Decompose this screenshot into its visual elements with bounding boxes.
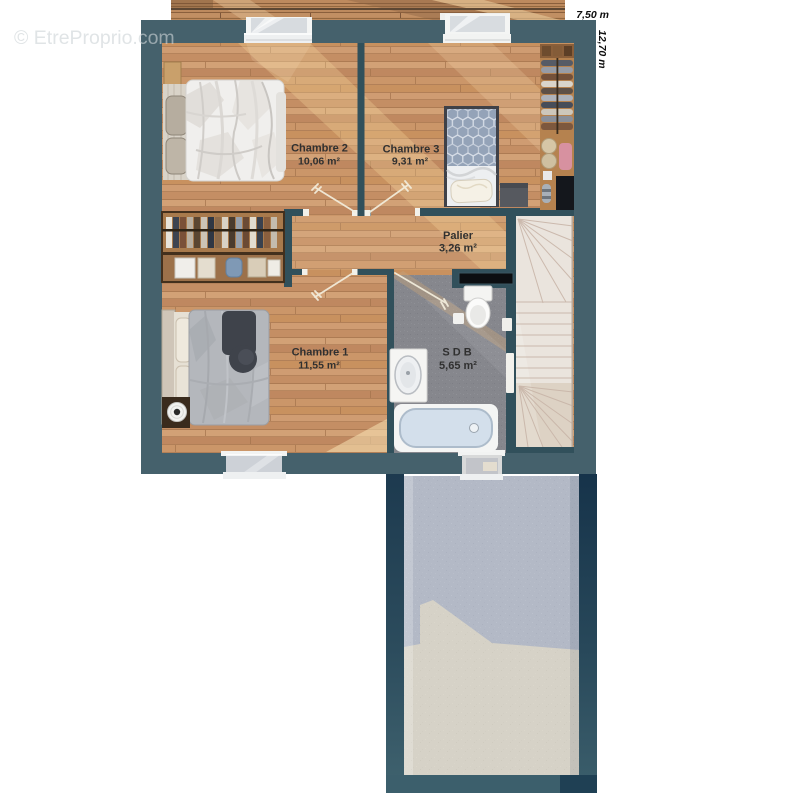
svg-text:S D B: S D B — [442, 347, 471, 359]
svg-text:Chambre 3: Chambre 3 — [383, 144, 440, 156]
svg-text:9,31 m²: 9,31 m² — [392, 156, 429, 168]
svg-text:Palier: Palier — [443, 230, 474, 242]
svg-text:12,70 m: 12,70 m — [596, 30, 608, 69]
svg-text:7,50 m: 7,50 m — [576, 9, 609, 21]
svg-text:Chambre 1: Chambre 1 — [292, 347, 349, 359]
svg-text:10,06 m²: 10,06 m² — [298, 156, 341, 168]
svg-text:5,65 m²: 5,65 m² — [439, 360, 477, 372]
svg-text:11,55 m²: 11,55 m² — [298, 360, 340, 372]
svg-text:3,26 m²: 3,26 m² — [439, 243, 477, 255]
svg-text:© EtreProprio.com: © EtreProprio.com — [14, 27, 175, 49]
svg-text:Chambre 2: Chambre 2 — [291, 143, 348, 155]
